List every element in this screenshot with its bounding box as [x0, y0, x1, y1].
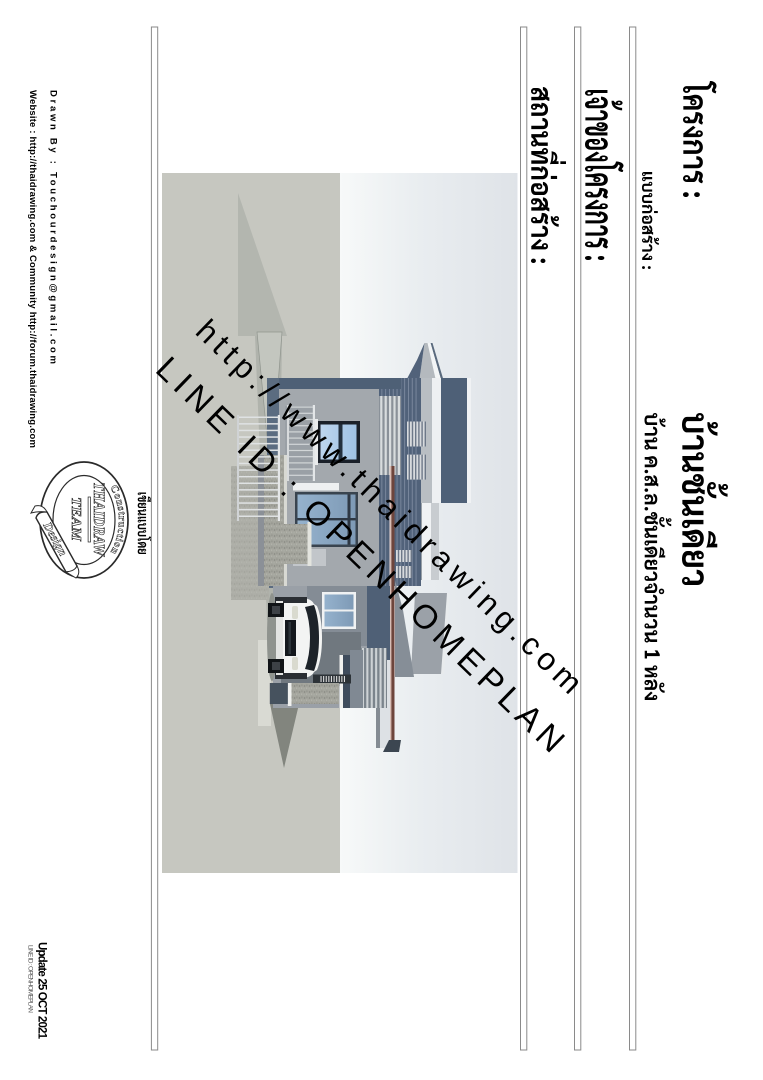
svg-text:THAIDRAW: THAIDRAW	[90, 482, 107, 558]
svg-text:TEAM: TEAM	[68, 497, 83, 542]
svg-text:Update 25 OCT 2021: Update 25 OCT 2021	[36, 942, 48, 1040]
svg-text:LINE ID : OPENHOMEPLAN: LINE ID : OPENHOMEPLAN	[27, 945, 34, 1013]
svg-text:Website : http://thaidrawing.c: Website : http://thaidrawing.com & Commu…	[27, 90, 38, 448]
